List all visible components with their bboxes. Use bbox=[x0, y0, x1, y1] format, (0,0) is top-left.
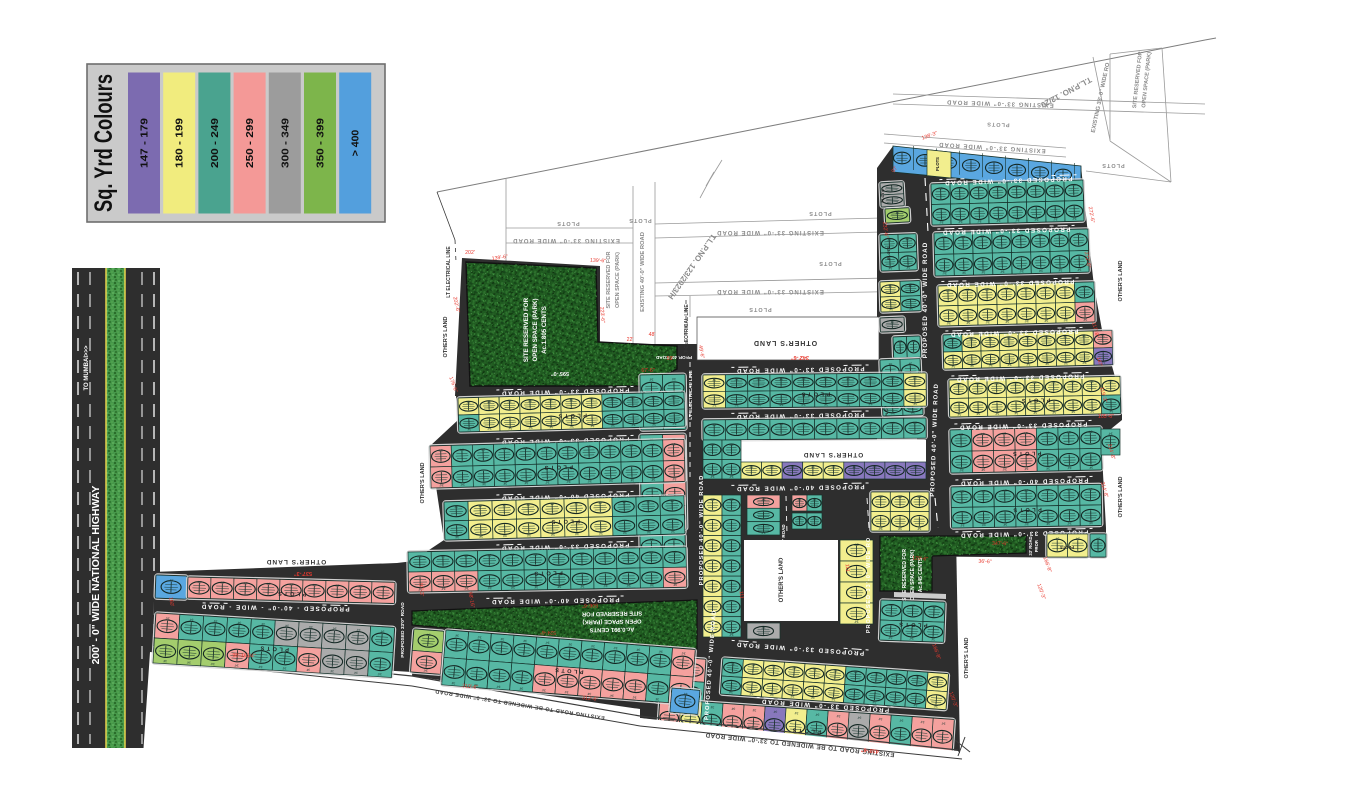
svg-text:34': 34' bbox=[894, 673, 899, 677]
svg-text:34': 34' bbox=[1109, 409, 1114, 413]
svg-text:34': 34' bbox=[438, 448, 443, 452]
svg-text:34': 34' bbox=[527, 399, 532, 403]
svg-text:34': 34' bbox=[220, 580, 225, 584]
svg-text:34': 34' bbox=[500, 637, 505, 641]
svg-text:34': 34' bbox=[266, 582, 271, 586]
svg-text:34': 34' bbox=[908, 283, 913, 287]
svg-text:Ac.845 CENTS: Ac.845 CENTS bbox=[918, 557, 924, 592]
svg-text:34': 34' bbox=[1045, 362, 1050, 366]
svg-text:34': 34' bbox=[423, 668, 428, 672]
svg-text:34': 34' bbox=[981, 270, 986, 274]
svg-text:PLOTS: PLOTS bbox=[1060, 545, 1074, 550]
svg-text:34': 34' bbox=[603, 584, 608, 588]
svg-text:34': 34' bbox=[969, 364, 974, 368]
svg-text:34': 34' bbox=[502, 503, 507, 507]
svg-text:34': 34' bbox=[467, 427, 472, 431]
svg-text:34': 34' bbox=[464, 586, 469, 590]
svg-text:34': 34' bbox=[1108, 432, 1113, 436]
svg-text:34': 34' bbox=[977, 219, 982, 223]
svg-text:34': 34' bbox=[197, 580, 202, 584]
svg-text:34': 34' bbox=[852, 465, 857, 469]
svg-text:34': 34' bbox=[892, 701, 897, 705]
svg-text:34': 34' bbox=[910, 410, 915, 414]
svg-text:34': 34' bbox=[790, 465, 795, 469]
svg-text:34': 34' bbox=[1007, 363, 1012, 367]
svg-text:347'-6": 347'-6" bbox=[992, 541, 1008, 548]
svg-text:34': 34' bbox=[580, 584, 585, 588]
svg-text:34': 34' bbox=[672, 422, 677, 426]
svg-text:34': 34' bbox=[646, 530, 651, 534]
svg-text:34': 34' bbox=[909, 636, 914, 640]
svg-text:34': 34' bbox=[942, 271, 947, 275]
svg-text:34': 34' bbox=[381, 585, 386, 589]
svg-text:34': 34' bbox=[1082, 285, 1087, 289]
svg-text:34': 34' bbox=[930, 637, 935, 641]
svg-text:34': 34' bbox=[823, 402, 828, 406]
svg-text:34': 34' bbox=[710, 443, 715, 447]
svg-text:34': 34' bbox=[655, 697, 660, 701]
svg-text:34': 34' bbox=[169, 578, 174, 582]
svg-text:34': 34' bbox=[650, 443, 655, 447]
svg-text:34': 34' bbox=[729, 474, 734, 478]
svg-text:34': 34' bbox=[439, 483, 444, 487]
svg-text:34': 34' bbox=[957, 412, 962, 416]
svg-text:EXISTING 40'-0" WIDE ROAD: EXISTING 40'-0" WIDE ROAD bbox=[640, 232, 646, 312]
svg-text:34': 34' bbox=[868, 421, 873, 425]
svg-text:34': 34' bbox=[335, 583, 340, 587]
svg-text:34': 34' bbox=[854, 543, 859, 547]
svg-text:34': 34' bbox=[508, 426, 513, 430]
svg-text:34': 34' bbox=[958, 432, 963, 436]
svg-text:34': 34' bbox=[587, 479, 592, 483]
svg-text:EXISTING 33'-0" WIDE ROAD: EXISTING 33'-0" WIDE ROAD bbox=[716, 288, 824, 294]
svg-text:OTHER'S LAND: OTHER'S LAND bbox=[420, 462, 426, 503]
svg-text:34': 34' bbox=[630, 396, 635, 400]
svg-text:34': 34' bbox=[712, 422, 717, 426]
svg-text:34': 34' bbox=[854, 619, 859, 623]
svg-text:34': 34' bbox=[913, 703, 918, 707]
svg-text:34': 34' bbox=[888, 266, 893, 270]
svg-text:Ac.0.991 CENTS: Ac.0.991 CENTS bbox=[589, 626, 634, 633]
svg-text:34': 34' bbox=[938, 186, 943, 190]
svg-text:34': 34' bbox=[981, 468, 986, 472]
svg-text:34': 34' bbox=[1033, 411, 1038, 415]
svg-text:34': 34' bbox=[557, 585, 562, 589]
svg-text:34': 34' bbox=[1072, 217, 1077, 221]
svg-text:34': 34' bbox=[910, 604, 915, 608]
svg-text:34': 34' bbox=[671, 442, 676, 446]
svg-text:SITE RESERVED FOR: SITE RESERVED FOR bbox=[581, 609, 642, 616]
svg-text:34': 34' bbox=[1108, 379, 1113, 383]
svg-text:34': 34' bbox=[1024, 522, 1029, 526]
svg-text:34': 34' bbox=[1055, 537, 1060, 541]
svg-text:34': 34' bbox=[636, 648, 641, 652]
svg-text:34': 34' bbox=[673, 583, 678, 587]
svg-text:180 - 199: 180 - 199 bbox=[174, 118, 186, 168]
svg-text:34': 34' bbox=[1083, 318, 1088, 322]
svg-text:34': 34' bbox=[729, 498, 734, 502]
svg-text:34': 34' bbox=[988, 363, 993, 367]
svg-text:34': 34' bbox=[574, 532, 579, 536]
svg-text:97'-3": 97'-3" bbox=[417, 583, 424, 597]
svg-text:34': 34' bbox=[960, 523, 965, 527]
svg-text:147 - 179: 147 - 179 bbox=[139, 118, 151, 168]
svg-text:34': 34' bbox=[932, 604, 937, 608]
svg-text:34': 34' bbox=[734, 422, 739, 426]
svg-text:34': 34' bbox=[794, 711, 799, 715]
svg-text:34': 34' bbox=[622, 500, 627, 504]
svg-text:595'-0": 595'-0" bbox=[551, 370, 569, 376]
svg-text:34': 34' bbox=[933, 704, 938, 708]
svg-text:34': 34' bbox=[797, 516, 802, 520]
svg-text:34': 34' bbox=[1005, 320, 1010, 324]
svg-text:34': 34' bbox=[1044, 319, 1049, 323]
svg-text:34': 34' bbox=[672, 477, 677, 481]
svg-text:34': 34' bbox=[810, 696, 815, 700]
svg-text:OPEN SPACE (PARK): OPEN SPACE (PARK) bbox=[582, 617, 641, 624]
svg-text:250 - 299: 250 - 299 bbox=[244, 118, 256, 168]
svg-text:34': 34' bbox=[486, 400, 491, 404]
svg-text:34': 34' bbox=[868, 402, 873, 406]
svg-text:139'-6": 139'-6" bbox=[590, 258, 607, 265]
svg-text:34': 34' bbox=[878, 526, 883, 530]
svg-text:34': 34' bbox=[630, 478, 635, 482]
svg-text:PROPOSED 40'-0" WIDE ROAD: PROPOSED 40'-0" WIDE ROAD bbox=[922, 242, 929, 358]
svg-text:34': 34' bbox=[790, 694, 795, 698]
svg-text:34': 34' bbox=[1071, 183, 1076, 187]
svg-text:34': 34' bbox=[898, 526, 903, 530]
svg-text:34': 34' bbox=[1071, 410, 1076, 414]
svg-text:34': 34' bbox=[380, 629, 385, 633]
svg-text:OTHER'S LAND: OTHER'S LAND bbox=[1118, 260, 1124, 301]
svg-text:34': 34' bbox=[210, 662, 215, 666]
svg-text:34': 34' bbox=[893, 465, 898, 469]
svg-text:34': 34' bbox=[651, 395, 656, 399]
svg-text:34': 34' bbox=[812, 667, 817, 671]
svg-text:34': 34' bbox=[810, 465, 815, 469]
svg-text:34': 34' bbox=[478, 504, 483, 508]
svg-text:34': 34' bbox=[522, 639, 527, 643]
svg-text:34': 34' bbox=[632, 695, 637, 699]
svg-text:34': 34' bbox=[1088, 521, 1093, 525]
svg-text:PLOTS: PLOTS bbox=[808, 210, 831, 216]
svg-text:34': 34' bbox=[710, 498, 715, 502]
svg-text:Sq. Yrd Colours: Sq. Yrd Colours bbox=[90, 74, 118, 212]
svg-text:PLOTS: PLOTS bbox=[1019, 396, 1050, 403]
svg-text:34': 34' bbox=[524, 481, 529, 485]
svg-text:34': 34' bbox=[981, 523, 986, 527]
svg-text:34': 34' bbox=[995, 411, 1000, 415]
svg-text:34': 34' bbox=[1026, 362, 1031, 366]
svg-text:EXISTING 33'-0" WIDE ROAD: EXISTING 33'-0" WIDE ROAD bbox=[512, 237, 620, 243]
svg-text:34': 34' bbox=[761, 498, 766, 502]
svg-text:34': 34' bbox=[1053, 217, 1058, 221]
svg-text:34': 34' bbox=[258, 665, 263, 669]
svg-text:34': 34' bbox=[731, 707, 736, 711]
svg-text:EXISTING 33'-0" WIDE ROAD: EXISTING 33'-0" WIDE ROAD bbox=[716, 229, 824, 235]
svg-text:34': 34' bbox=[550, 502, 555, 506]
svg-text:34': 34' bbox=[872, 465, 877, 469]
svg-text:202': 202' bbox=[465, 250, 475, 256]
svg-text:34': 34' bbox=[888, 284, 893, 288]
svg-text:33' ROAD: 33' ROAD bbox=[1028, 536, 1033, 555]
svg-text:34': 34' bbox=[1077, 268, 1082, 272]
svg-text:59': 59' bbox=[667, 356, 674, 362]
svg-text:34': 34' bbox=[651, 478, 656, 482]
svg-text:34': 34' bbox=[671, 395, 676, 399]
svg-text:67'-6": 67'-6" bbox=[641, 368, 654, 374]
svg-text:34': 34' bbox=[586, 444, 591, 448]
svg-text:34': 34' bbox=[613, 646, 618, 650]
svg-text:34': 34' bbox=[976, 412, 981, 416]
svg-text:34': 34' bbox=[769, 693, 774, 697]
svg-text:34': 34' bbox=[672, 550, 677, 554]
svg-text:34': 34' bbox=[890, 320, 895, 324]
svg-text:34': 34' bbox=[868, 376, 873, 380]
svg-text:34': 34' bbox=[878, 717, 883, 721]
svg-text:34': 34' bbox=[917, 526, 922, 530]
svg-text:PROP. 40'-0" ROAD: PROP. 40'-0" ROAD bbox=[781, 524, 786, 566]
svg-text:OTHER'S LAND: OTHER'S LAND bbox=[443, 316, 449, 357]
svg-text:SITE RESERVED FOR: SITE RESERVED FOR bbox=[606, 251, 612, 308]
svg-text:34': 34' bbox=[749, 465, 754, 469]
svg-text:34': 34' bbox=[1089, 380, 1094, 384]
svg-text:34': 34' bbox=[417, 554, 422, 558]
svg-text:34': 34' bbox=[1066, 430, 1071, 434]
svg-text:34': 34' bbox=[996, 219, 1001, 223]
svg-text:PLOTS: PLOTS bbox=[556, 412, 587, 419]
svg-text:34': 34' bbox=[598, 531, 603, 535]
svg-text:34': 34' bbox=[728, 690, 733, 694]
svg-text:34': 34' bbox=[761, 530, 766, 534]
svg-text:34': 34' bbox=[569, 424, 574, 428]
svg-text:OTHER'S LAND: OTHER'S LAND bbox=[1118, 476, 1124, 517]
svg-text:34': 34' bbox=[981, 489, 986, 493]
svg-text:34': 34' bbox=[626, 584, 631, 588]
svg-text:34': 34' bbox=[284, 623, 289, 627]
svg-text:34': 34' bbox=[589, 397, 594, 401]
svg-text:34': 34' bbox=[454, 535, 459, 539]
svg-text:SITE RESERVED FOR: SITE RESERVED FOR bbox=[523, 297, 530, 362]
svg-text:34': 34' bbox=[1045, 488, 1050, 492]
svg-text:34': 34' bbox=[478, 534, 483, 538]
svg-text:34': 34' bbox=[1063, 361, 1068, 365]
svg-text:34': 34' bbox=[568, 642, 573, 646]
svg-text:PLOTS: PLOTS bbox=[532, 569, 563, 576]
svg-text:34': 34' bbox=[712, 403, 717, 407]
svg-text:34': 34' bbox=[911, 339, 916, 343]
svg-text:34': 34' bbox=[566, 480, 571, 484]
svg-text:34': 34' bbox=[165, 616, 170, 620]
svg-text:34': 34' bbox=[779, 377, 784, 381]
svg-text:OPEN SPACE (PARK): OPEN SPACE (PARK) bbox=[615, 252, 621, 308]
svg-text:34': 34' bbox=[915, 674, 920, 678]
svg-text:34': 34' bbox=[306, 668, 311, 672]
svg-text:34': 34' bbox=[980, 432, 985, 436]
svg-text:34': 34' bbox=[712, 377, 717, 381]
svg-text:34': 34' bbox=[649, 550, 654, 554]
svg-text:OPEN SPACE (PARK): OPEN SPACE (PARK) bbox=[532, 298, 539, 361]
svg-text:PLOTS: PLOTS bbox=[748, 306, 771, 312]
svg-text:34': 34' bbox=[579, 552, 584, 556]
svg-text:34': 34' bbox=[836, 714, 841, 718]
svg-text:PLOTS: PLOTS bbox=[1011, 450, 1042, 457]
svg-text:34': 34' bbox=[649, 377, 654, 381]
svg-text:OTHER'S LAND: OTHER'S LAND bbox=[266, 558, 327, 565]
svg-text:34': 34' bbox=[831, 465, 836, 469]
svg-text:34': 34' bbox=[890, 421, 895, 425]
svg-text:34': 34' bbox=[1075, 537, 1080, 541]
svg-text:34': 34' bbox=[556, 552, 561, 556]
svg-text:34': 34' bbox=[1090, 409, 1095, 413]
svg-text:34': 34' bbox=[905, 237, 910, 241]
svg-text:34': 34' bbox=[683, 692, 688, 696]
svg-text:PLOTS: PLOTS bbox=[799, 390, 830, 396]
svg-text:34': 34' bbox=[451, 681, 456, 685]
svg-text:34': 34' bbox=[730, 661, 735, 665]
svg-text:34': 34' bbox=[545, 480, 550, 484]
svg-text:PLOTS: PLOTS bbox=[276, 590, 307, 597]
svg-text:34': 34' bbox=[823, 422, 828, 426]
svg-text:34': 34' bbox=[1003, 522, 1008, 526]
svg-text:PLOTS: PLOTS bbox=[886, 246, 891, 260]
svg-text:36'-6": 36'-6" bbox=[978, 559, 992, 565]
svg-text:PLOTS: PLOTS bbox=[880, 189, 885, 203]
svg-text:PLOTS: PLOTS bbox=[628, 217, 651, 223]
svg-text:34': 34' bbox=[646, 499, 651, 503]
svg-text:34': 34' bbox=[917, 495, 922, 499]
svg-text:34': 34' bbox=[756, 377, 761, 381]
svg-text:34': 34' bbox=[658, 649, 663, 653]
svg-text:34': 34' bbox=[1034, 218, 1039, 222]
svg-text:34': 34' bbox=[631, 423, 636, 427]
svg-text:34': 34' bbox=[792, 665, 797, 669]
svg-text:34': 34' bbox=[622, 531, 627, 535]
svg-text:34': 34' bbox=[1002, 431, 1007, 435]
svg-text:34': 34' bbox=[332, 626, 337, 630]
svg-text:34': 34' bbox=[523, 446, 528, 450]
svg-text:300 - 349: 300 - 349 bbox=[279, 118, 291, 168]
svg-text:34': 34' bbox=[358, 584, 363, 588]
svg-text:34': 34' bbox=[751, 663, 756, 667]
svg-text:PLOTS: PLOTS bbox=[818, 260, 841, 266]
svg-text:34': 34' bbox=[888, 307, 893, 311]
svg-text:34': 34' bbox=[528, 425, 533, 429]
svg-text:34': 34' bbox=[308, 625, 313, 629]
svg-text:34': 34' bbox=[329, 669, 334, 673]
svg-text:34': 34' bbox=[454, 633, 459, 637]
svg-text:34': 34' bbox=[670, 529, 675, 533]
svg-text:34': 34' bbox=[671, 537, 676, 541]
svg-text:PROP.: PROP. bbox=[1034, 540, 1039, 553]
svg-text:34': 34' bbox=[356, 628, 361, 632]
svg-text:34': 34' bbox=[526, 533, 531, 537]
svg-text:34': 34' bbox=[897, 339, 902, 343]
svg-text:34': 34' bbox=[920, 720, 925, 724]
svg-text:Ac.1.805 CENTS: Ac.1.805 CENTS bbox=[541, 306, 548, 354]
svg-text:34': 34' bbox=[550, 533, 555, 537]
svg-text:342'-6": 342'-6" bbox=[791, 354, 809, 360]
svg-text:34': 34' bbox=[1045, 431, 1050, 435]
svg-text:34': 34' bbox=[377, 672, 382, 676]
svg-text:34': 34' bbox=[1002, 489, 1007, 493]
svg-text:34': 34' bbox=[590, 644, 595, 648]
svg-text:34': 34' bbox=[1067, 521, 1072, 525]
svg-text:48': 48' bbox=[649, 332, 656, 338]
svg-text:34': 34' bbox=[761, 626, 766, 630]
svg-text:34': 34' bbox=[481, 482, 486, 486]
svg-text:34': 34' bbox=[906, 265, 911, 269]
svg-text:34': 34' bbox=[487, 553, 492, 557]
svg-text:34': 34' bbox=[812, 516, 817, 520]
svg-text:34': 34' bbox=[890, 402, 895, 406]
svg-text:34': 34' bbox=[649, 537, 654, 541]
svg-text:34': 34' bbox=[243, 581, 248, 585]
svg-text:34': 34' bbox=[502, 534, 507, 538]
svg-text:34': 34' bbox=[481, 447, 486, 451]
svg-text:34': 34' bbox=[1038, 269, 1043, 273]
svg-text:34': 34' bbox=[590, 424, 595, 428]
svg-text:34': 34' bbox=[773, 710, 778, 714]
svg-text:PLOTS: PLOTS bbox=[986, 121, 1010, 128]
svg-text:34': 34' bbox=[574, 501, 579, 505]
svg-text:34': 34' bbox=[626, 551, 631, 555]
svg-text:PLOTS: PLOTS bbox=[542, 463, 573, 470]
svg-text:34': 34' bbox=[353, 671, 358, 675]
svg-text:34': 34' bbox=[1000, 270, 1005, 274]
svg-text:34': 34' bbox=[162, 659, 167, 663]
svg-text:34': 34' bbox=[510, 553, 515, 557]
svg-text:34': 34' bbox=[1067, 466, 1072, 470]
svg-text:537'-3": 537'-3" bbox=[294, 570, 312, 576]
svg-text:TO MUMBAI>>>: TO MUMBAI>>> bbox=[84, 345, 90, 391]
svg-text:34': 34' bbox=[459, 448, 464, 452]
svg-text:34': 34' bbox=[899, 718, 904, 722]
svg-text:34': 34' bbox=[1023, 431, 1028, 435]
svg-text:34': 34' bbox=[890, 411, 895, 415]
svg-text:PROPOSED 33'0" ROAD: PROPOSED 33'0" ROAD bbox=[400, 602, 406, 658]
svg-text:PLOTS: PLOTS bbox=[897, 621, 928, 628]
svg-text:34': 34' bbox=[890, 376, 895, 380]
svg-text:34': 34' bbox=[1058, 268, 1063, 272]
svg-text:34': 34' bbox=[769, 465, 774, 469]
svg-text:PROPOSED 33'-0" WIDE RO: PROPOSED 33'-0" WIDE RO bbox=[866, 537, 872, 633]
svg-text:34': 34' bbox=[598, 500, 603, 504]
svg-text:34': 34' bbox=[959, 468, 964, 472]
svg-text:34': 34' bbox=[670, 499, 675, 503]
svg-text:34': 34' bbox=[734, 403, 739, 407]
svg-text:34': 34' bbox=[460, 483, 465, 487]
svg-text:34': 34' bbox=[831, 697, 836, 701]
svg-text:34': 34' bbox=[602, 551, 607, 555]
svg-text:OTHER'S LAND: OTHER'S LAND bbox=[753, 339, 817, 346]
svg-text:34': 34' bbox=[510, 586, 515, 590]
svg-text:34': 34' bbox=[1100, 333, 1105, 337]
svg-text:OTHER'S LAND: OTHER'S LAND bbox=[964, 637, 970, 678]
svg-text:34': 34' bbox=[1046, 522, 1051, 526]
svg-text:34': 34' bbox=[853, 670, 858, 674]
svg-text:34': 34' bbox=[734, 377, 739, 381]
svg-text:34': 34' bbox=[1088, 430, 1093, 434]
svg-text:34': 34' bbox=[1052, 410, 1057, 414]
svg-text:34': 34' bbox=[913, 402, 918, 406]
svg-text:34': 34' bbox=[878, 495, 883, 499]
svg-text:34': 34' bbox=[935, 675, 940, 679]
svg-text:105'-6": 105'-6" bbox=[1098, 414, 1114, 420]
svg-text:34': 34' bbox=[845, 421, 850, 425]
svg-text:LT ELECTRICAL LINE: LT ELECTRICAL LINE bbox=[684, 304, 690, 356]
svg-text:34': 34' bbox=[519, 686, 524, 690]
